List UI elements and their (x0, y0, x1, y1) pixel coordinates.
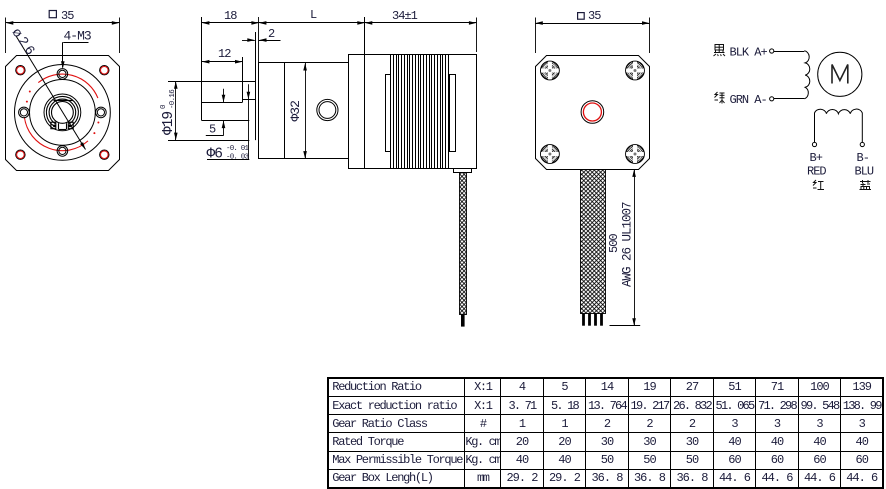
svg-text:Φ6: Φ6 (207, 147, 223, 163)
svg-text:2: 2 (268, 27, 275, 41)
svg-text:12: 12 (218, 47, 231, 61)
svg-text:35: 35 (588, 9, 601, 23)
svg-text:L: L (310, 8, 317, 22)
svg-text:Φ32: Φ32 (288, 101, 303, 122)
svg-text:35: 35 (61, 9, 74, 23)
svg-text:-0. 01: -0. 01 (226, 145, 250, 153)
svg-text:34±1: 34±1 (392, 9, 418, 23)
svg-text:500: 500 (607, 234, 621, 253)
svg-text:-0.16: -0.16 (169, 89, 177, 109)
svg-text:18: 18 (224, 9, 237, 23)
svg-text:Φ19: Φ19 (161, 112, 177, 135)
svg-text:AWG 26 UL1007: AWG 26 UL1007 (621, 202, 635, 287)
svg-text:0: 0 (160, 104, 168, 109)
svg-text:-0. 03: -0. 03 (226, 154, 250, 162)
svg-text:B-: B- (857, 151, 869, 165)
svg-text:B+: B+ (810, 151, 823, 165)
svg-text:5: 5 (209, 123, 216, 137)
svg-text:4-M3: 4-M3 (64, 29, 91, 44)
svg-text:RED: RED (807, 165, 826, 179)
svg-text:BLK A+: BLK A+ (730, 46, 768, 60)
svg-text:BLU: BLU (855, 165, 874, 179)
svg-text:GRN A-: GRN A- (730, 93, 767, 107)
